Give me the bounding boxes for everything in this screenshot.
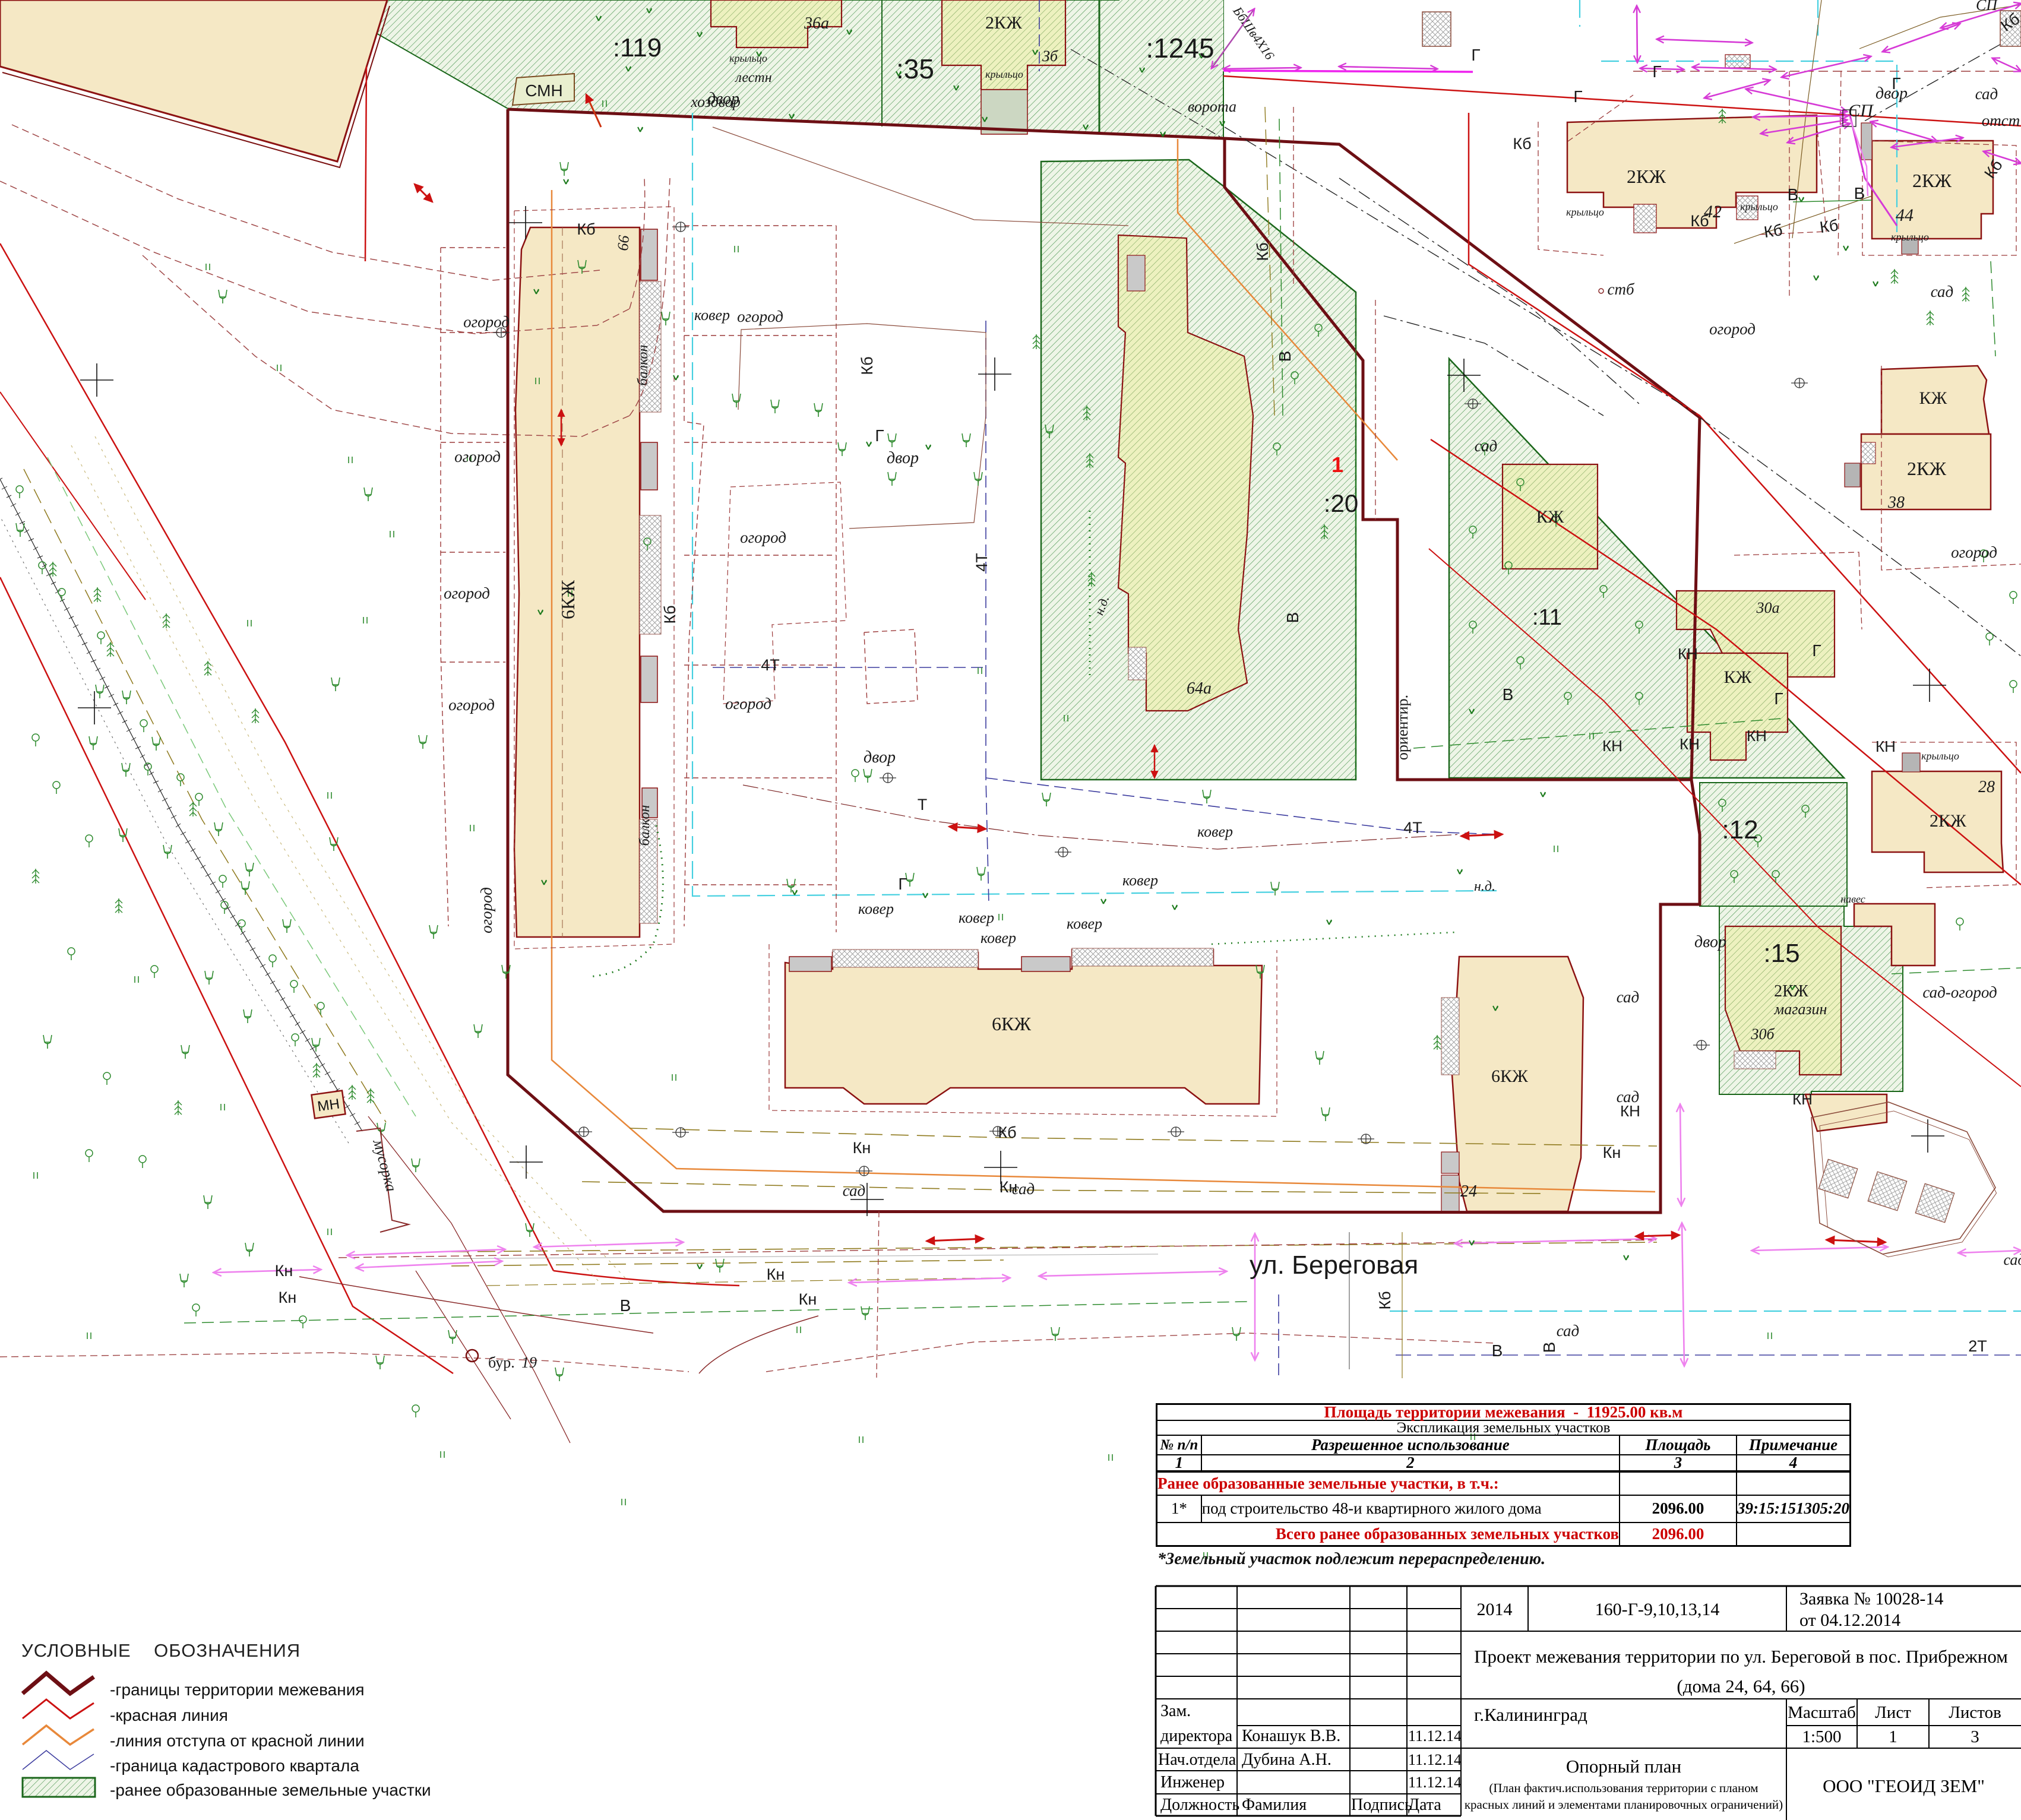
- svg-text:Подпись: Подпись: [1351, 1796, 1412, 1814]
- svg-text:Зам.: Зам.: [1160, 1702, 1191, 1720]
- svg-text:Конашук В.В.: Конашук В.В.: [1242, 1727, 1340, 1745]
- svg-text:(дома 24, 64, 66): (дома 24, 64, 66): [1677, 1676, 1805, 1696]
- svg-text:Масштаб: Масштаб: [1788, 1703, 1856, 1722]
- svg-text:11.12.14: 11.12.14: [1408, 1774, 1462, 1791]
- svg-text:Фамилия: Фамилия: [1242, 1796, 1307, 1814]
- svg-text:Дата: Дата: [1408, 1796, 1441, 1814]
- svg-text:Опорный план: Опорный план: [1566, 1756, 1681, 1777]
- svg-text:Лист: Лист: [1875, 1703, 1911, 1722]
- svg-text:г.Калининград: г.Калининград: [1474, 1704, 1587, 1725]
- svg-text:Проект межевания территории по: Проект межевания территории по ул. Берег…: [1474, 1646, 2008, 1667]
- svg-text:(План фактич.использования тер: (План фактич.использования территории с …: [1489, 1781, 1758, 1795]
- svg-text:11.12.14: 11.12.14: [1408, 1727, 1462, 1745]
- svg-text:Листов: Листов: [1949, 1703, 2001, 1722]
- svg-text:красных линий и элементами пла: красных линий и элементами планировочных…: [1465, 1797, 1783, 1812]
- svg-text:ООО "ГЕОИД ЗЕМ": ООО "ГЕОИД ЗЕМ": [1823, 1775, 1985, 1796]
- svg-text:1: 1: [1889, 1727, 1897, 1746]
- svg-text:директора: директора: [1160, 1727, 1233, 1745]
- svg-text:1:500: 1:500: [1802, 1727, 1841, 1746]
- svg-text:2014: 2014: [1477, 1600, 1513, 1619]
- svg-text:Инженер: Инженер: [1160, 1773, 1225, 1791]
- svg-text:от 04.12.2014: от 04.12.2014: [1799, 1610, 1900, 1630]
- svg-text:Нач.отдела: Нач.отдела: [1158, 1751, 1236, 1769]
- svg-text:Дубина А.Н.: Дубина А.Н.: [1242, 1751, 1331, 1769]
- svg-text:11.12.14: 11.12.14: [1408, 1751, 1462, 1768]
- svg-text:160-Г-9,10,13,14: 160-Г-9,10,13,14: [1595, 1600, 1720, 1619]
- svg-text:Должность: Должность: [1160, 1796, 1239, 1814]
- svg-text:3: 3: [1971, 1727, 1979, 1746]
- svg-text:Заявка № 10028-14: Заявка № 10028-14: [1799, 1589, 1943, 1609]
